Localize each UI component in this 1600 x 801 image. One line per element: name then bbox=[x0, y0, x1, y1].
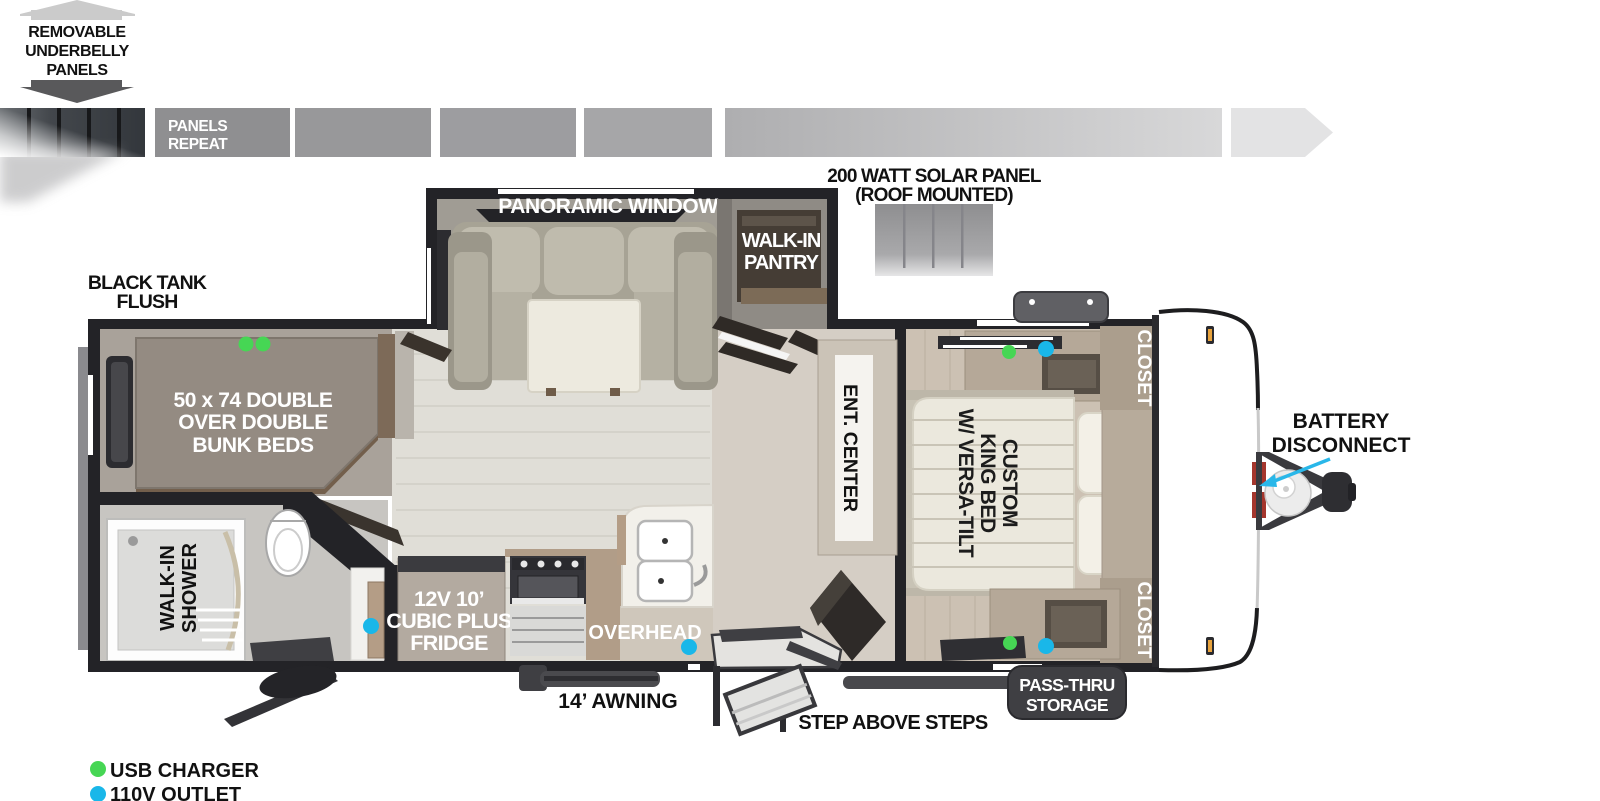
svg-text:REPEAT: REPEAT bbox=[168, 136, 228, 153]
svg-text:BATTERY: BATTERY bbox=[1293, 410, 1390, 433]
svg-text:STEP ABOVE STEPS: STEP ABOVE STEPS bbox=[798, 712, 988, 734]
svg-text:PANELS: PANELS bbox=[168, 118, 227, 135]
svg-text:CLOSET: CLOSET bbox=[1133, 581, 1154, 658]
svg-text:USB CHARGER: USB CHARGER bbox=[110, 760, 259, 782]
svg-text:200 WATT SOLAR PANEL: 200 WATT SOLAR PANEL bbox=[827, 166, 1042, 187]
svg-text:SHOWER: SHOWER bbox=[179, 542, 201, 633]
svg-text:(ROOF MOUNTED): (ROOF MOUNTED) bbox=[855, 185, 1013, 206]
svg-text:FLUSH: FLUSH bbox=[117, 291, 178, 313]
svg-text:PASS-THRU: PASS-THRU bbox=[1019, 675, 1114, 695]
svg-text:CUBIC PLUS: CUBIC PLUS bbox=[386, 609, 512, 633]
svg-text:W/ VERSA-TILT: W/ VERSA-TILT bbox=[954, 409, 977, 558]
svg-text:12V 10’: 12V 10’ bbox=[414, 587, 484, 611]
svg-text:WALK-IN: WALK-IN bbox=[157, 545, 179, 631]
svg-text:PANORAMIC WINDOW: PANORAMIC WINDOW bbox=[498, 195, 718, 218]
svg-text:ENT. CENTER: ENT. CENTER bbox=[839, 384, 861, 512]
svg-text:FRIDGE: FRIDGE bbox=[410, 631, 488, 655]
svg-text:CUSTOM: CUSTOM bbox=[998, 439, 1021, 527]
svg-text:WALK-IN: WALK-IN bbox=[742, 230, 821, 252]
svg-text:KING BED: KING BED bbox=[976, 433, 999, 533]
svg-text:50 x 74 DOUBLE: 50 x 74 DOUBLE bbox=[174, 389, 333, 412]
svg-text:BUNK BEDS: BUNK BEDS bbox=[192, 434, 314, 457]
svg-text:REMOVABLE: REMOVABLE bbox=[28, 24, 126, 41]
svg-text:14’ AWNING: 14’ AWNING bbox=[558, 690, 677, 713]
svg-text:CLOSET: CLOSET bbox=[1133, 329, 1154, 406]
svg-text:STORAGE: STORAGE bbox=[1026, 695, 1108, 715]
svg-text:DISCONNECT: DISCONNECT bbox=[1272, 434, 1411, 457]
svg-text:OVER DOUBLE: OVER DOUBLE bbox=[178, 411, 328, 434]
svg-text:UNDERBELLY: UNDERBELLY bbox=[25, 43, 130, 60]
svg-text:110V OUTLET: 110V OUTLET bbox=[110, 784, 241, 801]
svg-text:PANELS: PANELS bbox=[46, 62, 108, 79]
svg-text:PANTRY: PANTRY bbox=[744, 252, 820, 274]
